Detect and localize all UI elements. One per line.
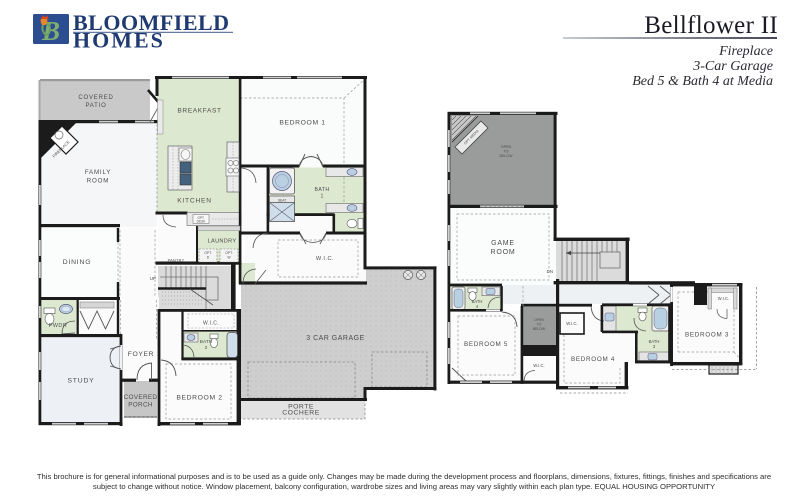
- svg-text:Bellflower II: Bellflower II: [644, 12, 778, 39]
- svg-text:W.I.C.: W.I.C.: [533, 363, 544, 368]
- svg-text:ROOM: ROOM: [87, 178, 109, 185]
- svg-text:FAMILY: FAMILY: [85, 169, 111, 176]
- svg-text:OPT.: OPT.: [225, 251, 233, 255]
- svg-text:BEDROOM 4: BEDROOM 4: [571, 356, 615, 363]
- svg-text:This brochure is for general i: This brochure is for general information…: [37, 472, 771, 481]
- svg-text:W.I.C.: W.I.C.: [203, 321, 219, 327]
- svg-text:1: 1: [321, 194, 324, 200]
- svg-text:BREAKFAST: BREAKFAST: [177, 108, 221, 115]
- svg-text:COVERED: COVERED: [124, 394, 158, 401]
- svg-text:PORCH: PORCH: [128, 402, 153, 409]
- svg-text:UP: UP: [150, 276, 156, 281]
- svg-text:PANTRY: PANTRY: [168, 259, 185, 263]
- svg-text:3 CAR GARAGE: 3 CAR GARAGE: [306, 335, 365, 342]
- svg-text:BEDROOM 2: BEDROOM 2: [176, 395, 222, 402]
- svg-text:FOYER: FOYER: [128, 351, 154, 358]
- svg-text:LAUNDRY: LAUNDRY: [208, 239, 237, 245]
- svg-text:KITCHEN: KITCHEN: [177, 198, 212, 205]
- svg-text:subject to change without noti: subject to change without notice. Window…: [93, 482, 715, 491]
- svg-text:COVERED: COVERED: [78, 95, 113, 101]
- svg-text:W.I.C.: W.I.C.: [316, 256, 334, 262]
- svg-text:BEDROOM 1: BEDROOM 1: [279, 120, 325, 127]
- svg-text:ROOM: ROOM: [491, 249, 516, 256]
- svg-text:PWDR: PWDR: [49, 323, 67, 329]
- svg-text:W.I.C.: W.I.C.: [566, 321, 577, 326]
- svg-text:BELOW: BELOW: [533, 327, 546, 331]
- svg-text:PATIO: PATIO: [85, 103, 106, 109]
- svg-text:STUDY: STUDY: [67, 378, 94, 385]
- svg-text:TO: TO: [537, 322, 542, 326]
- svg-text:DN: DN: [547, 269, 553, 274]
- svg-text:DESK: DESK: [197, 219, 207, 223]
- svg-text:COCHERE: COCHERE: [282, 410, 320, 417]
- svg-text:BELOW: BELOW: [500, 154, 514, 158]
- svg-text:HOMES: HOMES: [73, 28, 165, 53]
- svg-text:BATH: BATH: [314, 187, 329, 193]
- svg-text:BEDROOM 5: BEDROOM 5: [464, 341, 508, 348]
- svg-text:BATH: BATH: [200, 339, 213, 345]
- svg-text:SEAT: SEAT: [278, 199, 287, 203]
- svg-text:GAME: GAME: [491, 240, 515, 247]
- svg-text:TO: TO: [504, 149, 509, 153]
- svg-text:DINING: DINING: [63, 259, 92, 266]
- svg-text:OPEN: OPEN: [501, 145, 512, 149]
- svg-text:OPT.: OPT.: [204, 251, 212, 255]
- svg-text:W.I.C.: W.I.C.: [718, 296, 729, 301]
- svg-text:2: 2: [205, 345, 208, 351]
- svg-text:OPEN: OPEN: [534, 318, 544, 322]
- svg-text:Fireplace: Fireplace: [718, 44, 773, 59]
- svg-text:3-Car Garage: 3-Car Garage: [692, 59, 773, 74]
- svg-text:Bed 5 & Bath 4 at Media: Bed 5 & Bath 4 at Media: [632, 74, 773, 89]
- svg-text:BEDROOM 3: BEDROOM 3: [685, 332, 729, 339]
